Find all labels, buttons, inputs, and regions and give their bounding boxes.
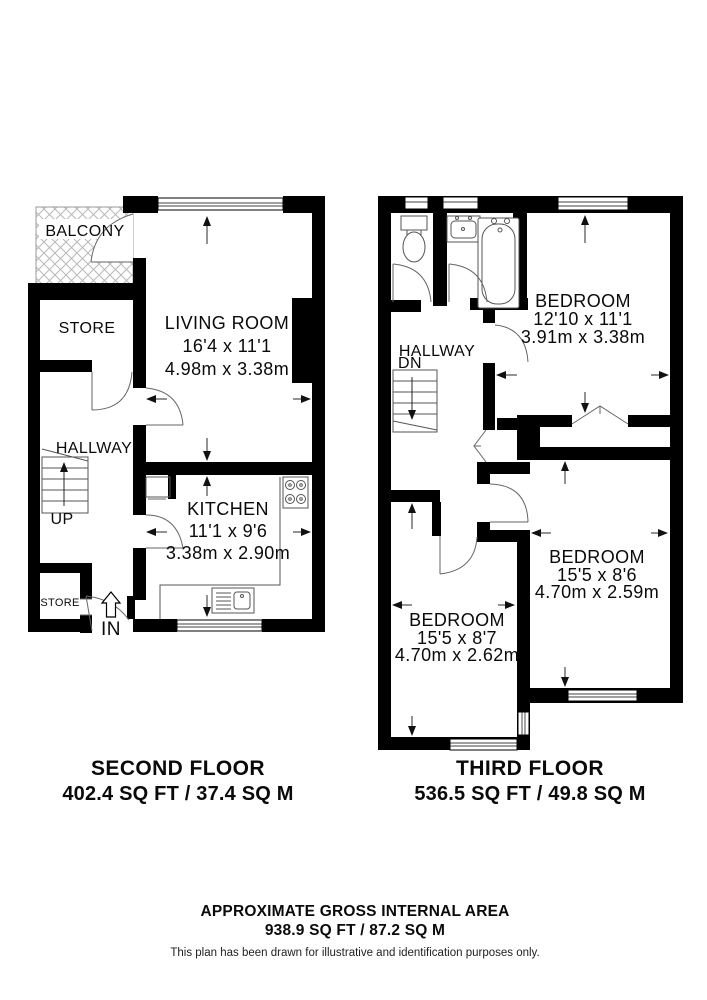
stairs-up [42,449,88,513]
stairs-down [393,370,437,432]
room-label-bedroom3: BEDROOM [409,610,505,630]
second-floor-area: 402.4 SQ FT / 37.4 SQ M [62,783,293,805]
room-label-balcony: BALCONY [45,223,124,240]
window [518,712,529,735]
room-label-hallway: HALLWAY [56,440,132,457]
chimney-breast [292,298,312,383]
window [568,690,637,701]
third-floor-area: 536.5 SQ FT / 49.8 SQ M [414,783,645,805]
stairs-dn-label: DN [398,355,422,372]
hob-icon [283,477,308,508]
door-arc [92,372,132,410]
living-room-size-metric: 4.98m x 3.38m [165,359,289,379]
third-floor-plan: HALLWAY DN BEDROOM 12'10 x 11'1 3.91m x … [378,196,683,805]
disclaimer-text: This plan has been drawn for illustrativ… [170,947,539,959]
room-label-bedroom1: BEDROOM [535,291,631,311]
gross-area-title: APPROXIMATE GROSS INTERNAL AREA [200,903,509,920]
window [405,197,428,209]
bedroom2-size-metric: 4.70m x 2.59m [535,582,659,602]
store-door-gap [80,599,92,615]
room-label-living-room: LIVING ROOM [165,313,289,333]
window [450,739,517,750]
floorplan-canvas: BALCONY STORE LIVING ROOM 16'4 x 11'1 4.… [0,0,707,1000]
floorplan-page: BALCONY STORE LIVING ROOM 16'4 x 11'1 4.… [0,0,707,1000]
bifold-door [572,406,628,424]
entrance-in-label: IN [101,619,121,640]
gross-area-value: 938.9 SQ FT / 87.2 SQ M [265,922,445,939]
door-arc [393,264,431,302]
door-arc [490,484,528,522]
door-arc [146,388,183,425]
third-floor-title: THIRD FLOOR [456,757,604,780]
bedroom1-size-imperial: 12'10 x 11'1 [533,309,632,329]
window [558,197,628,210]
bathtub-icon [478,218,519,308]
stairs-up-label: UP [50,511,73,528]
window [443,197,478,209]
toilet-icon [401,216,427,262]
bedroom1-size-metric: 3.91m x 3.38m [521,327,645,347]
kitchen-size-imperial: 11'1 x 9'6 [189,521,268,541]
kitchen-cupboard [146,477,170,497]
door-arc [440,536,477,574]
bedroom3-size-metric: 4.70m x 2.62m [395,645,519,665]
living-room-size-imperial: 16'4 x 11'1 [182,336,271,356]
kitchen-size-metric: 3.38m x 2.90m [166,543,290,563]
window [158,198,283,210]
kitchen-sink-icon [212,588,254,613]
footer: APPROXIMATE GROSS INTERNAL AREA 938.9 SQ… [170,903,539,959]
room-label-store-small: STORE [40,597,79,609]
room-label-store: STORE [59,320,116,337]
bathroom-sink-icon [447,216,480,242]
second-floor-title: SECOND FLOOR [91,757,265,780]
window [177,620,262,631]
room-label-bedroom2: BEDROOM [549,547,645,567]
entrance-in-arrow [102,592,120,617]
second-floor-plan: BALCONY STORE LIVING ROOM 16'4 x 11'1 4.… [28,196,325,805]
bifold-door [474,430,486,462]
room-label-kitchen: KITCHEN [187,499,269,519]
